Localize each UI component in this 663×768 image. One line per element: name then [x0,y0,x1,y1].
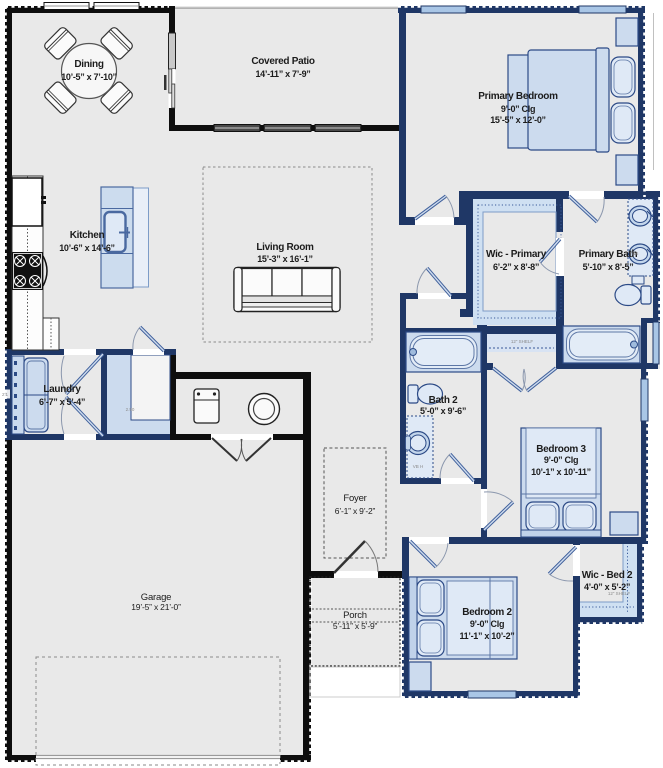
svg-text:6’-1” x 9’-2”: 6’-1” x 9’-2” [335,506,376,516]
svg-text:Primary Bedroom: Primary Bedroom [478,91,558,102]
svg-text:7/16: 7/16 [630,251,639,256]
svg-text:2.50: 2.50 [126,407,135,412]
svg-text:6’-2” x 8’-8”: 6’-2” x 8’-8” [493,262,539,272]
svg-text:15’-5” x 12’-0”: 15’-5” x 12’-0” [490,115,546,125]
svg-text:Bedroom 3: Bedroom 3 [536,444,586,455]
svg-text:5’-10” x 8’-5”: 5’-10” x 8’-5” [583,262,634,272]
svg-text:Kitchen: Kitchen [70,230,105,241]
svg-text:Porch: Porch [343,610,367,621]
svg-text:11’-1” x 10’-2”: 11’-1” x 10’-2” [459,631,514,641]
svg-text:10’-1” x 10’-11”: 10’-1” x 10’-11” [531,467,591,477]
svg-text:14’-11” x 7’-9”: 14’-11” x 7’-9” [255,69,310,79]
svg-text:Bedroom 2: Bedroom 2 [462,607,512,618]
svg-text:10’-6” x 14’-6”: 10’-6” x 14’-6” [59,243,115,253]
svg-text:19’-5” x 21’-0”: 19’-5” x 21’-0” [131,602,181,612]
svg-text:Foyer: Foyer [343,493,366,504]
svg-text:Covered Patio: Covered Patio [251,56,315,67]
svg-text:9’-0” Clg: 9’-0” Clg [470,619,504,629]
svg-text:12” SHELF: 12” SHELF [511,339,534,344]
svg-text:Living Room: Living Room [256,242,314,253]
svg-text:5’-0” x 9’-6”: 5’-0” x 9’-6” [420,406,466,416]
svg-text:VB H: VB H [413,464,424,469]
svg-text:12” SHELF: 12” SHELF [608,591,631,596]
svg-text:9’-0” Clg: 9’-0” Clg [544,455,578,465]
svg-text:10’-5” x 7’-10”: 10’-5” x 7’-10” [61,72,117,82]
svg-text:9’-0” Clg: 9’-0” Clg [501,104,535,114]
svg-text:2’1: 2’1 [2,392,9,397]
svg-text:Laundry: Laundry [43,384,81,395]
svg-text:Wic - Primary: Wic - Primary [486,249,547,260]
svg-text:5’-11” x 5’-9”: 5’-11” x 5’-9” [333,621,378,631]
svg-text:6’-7” x 5’-4”: 6’-7” x 5’-4” [39,397,85,407]
svg-text:Wic - Bed 2: Wic - Bed 2 [582,570,633,581]
svg-text:Bath 2: Bath 2 [429,395,459,406]
svg-text:15’-3” x 16’-1”: 15’-3” x 16’-1” [257,254,313,264]
svg-text:Dining: Dining [74,59,103,70]
